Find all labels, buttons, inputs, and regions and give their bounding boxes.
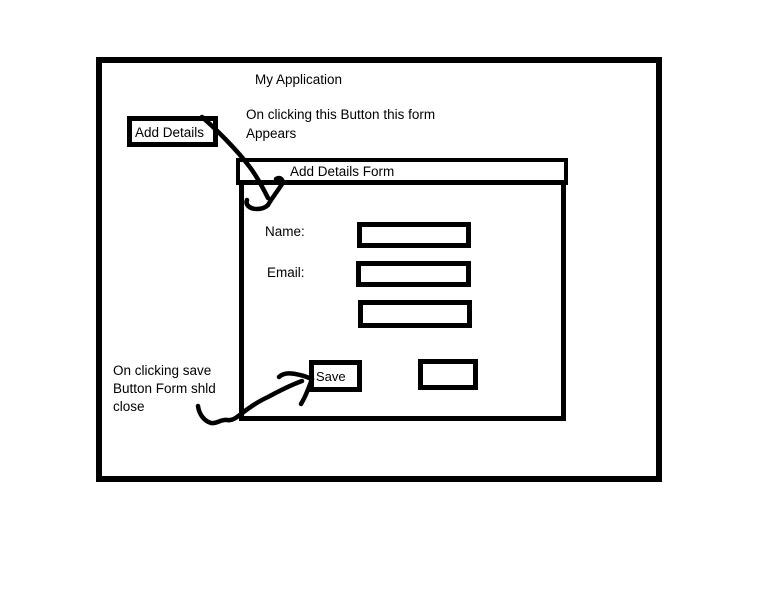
save-button-label: Save [316,369,346,384]
app-title: My Application [255,70,342,89]
add-details-button-label: Add Details [135,124,204,142]
add-details-button[interactable]: Add Details [127,116,218,147]
annotation-open-form: On clicking this Button this form Appear… [246,105,466,143]
name-input[interactable] [357,222,471,248]
unlabeled-button[interactable] [418,359,478,390]
save-button[interactable]: Save [309,360,362,392]
annotation-save-close: On clicking save Button Form shld close [113,362,263,416]
unlabeled-input[interactable] [358,300,472,328]
form-title-bar: Add Details Form [236,158,568,185]
email-input[interactable] [356,261,471,287]
name-label: Name: [265,224,305,239]
form-title: Add Details Form [290,164,394,180]
email-label: Email: [267,265,305,280]
